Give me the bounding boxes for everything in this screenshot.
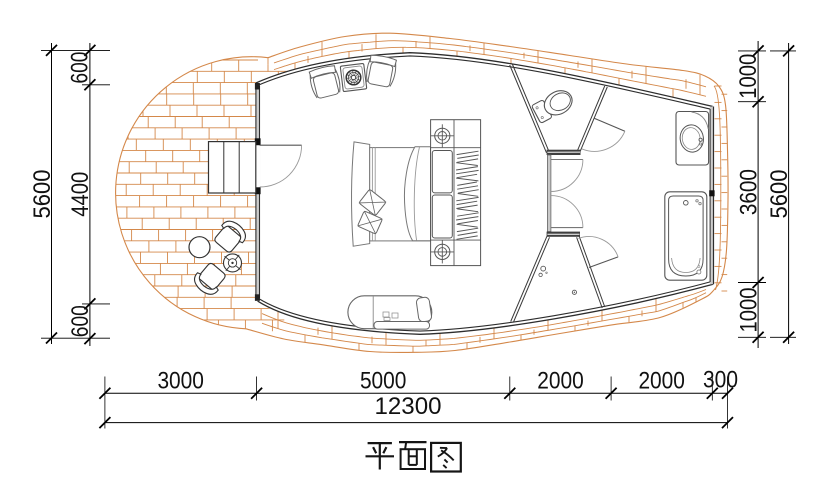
svg-text:600: 600	[67, 52, 94, 84]
svg-text:300: 300	[703, 367, 738, 394]
svg-text:12300: 12300	[375, 393, 442, 420]
svg-text:5600: 5600	[29, 170, 56, 219]
svg-text:1000: 1000	[735, 288, 762, 333]
svg-text:2000: 2000	[638, 368, 685, 395]
svg-text:2000: 2000	[537, 368, 584, 395]
svg-text:5000: 5000	[360, 368, 407, 395]
svg-text:3600: 3600	[735, 169, 762, 215]
svg-text:5600: 5600	[766, 170, 793, 219]
svg-text:3000: 3000	[157, 368, 204, 395]
svg-text:4400: 4400	[67, 172, 94, 217]
svg-text:600: 600	[67, 305, 94, 337]
svg-text:1000: 1000	[735, 54, 762, 99]
